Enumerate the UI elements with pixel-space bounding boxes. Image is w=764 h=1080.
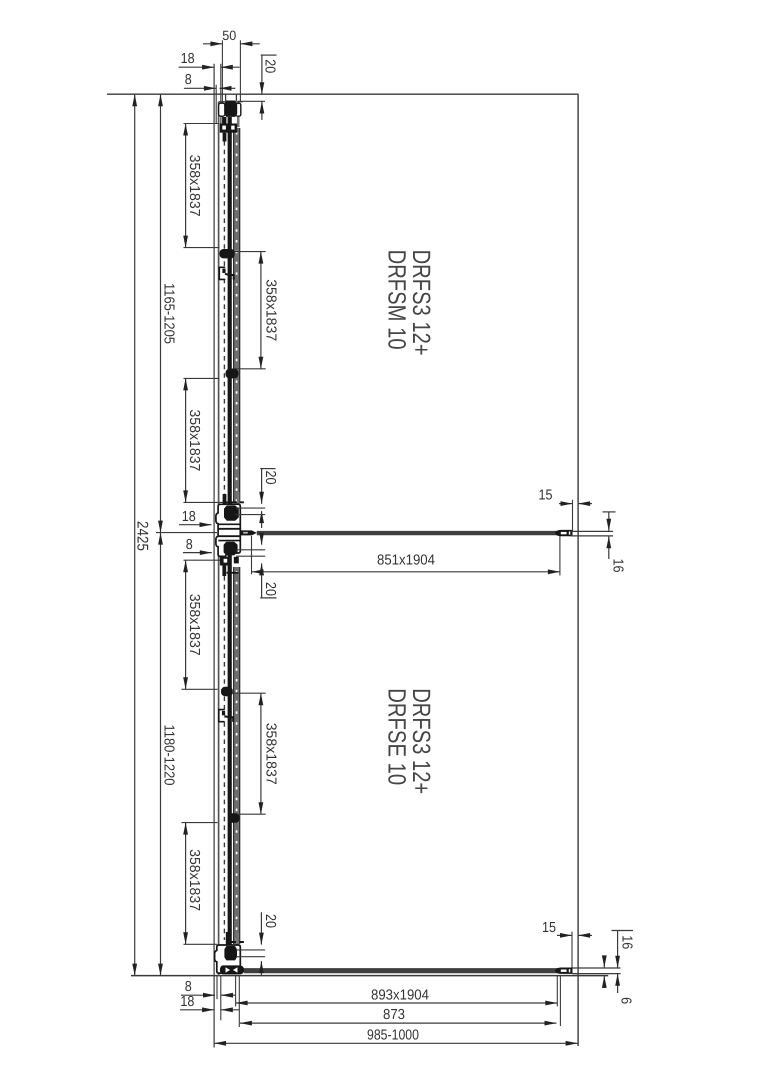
svg-text:15: 15 (539, 487, 553, 503)
svg-text:18: 18 (182, 509, 196, 525)
svg-text:20: 20 (261, 59, 277, 73)
svg-text:1180-1220: 1180-1220 (161, 725, 177, 786)
svg-text:6: 6 (618, 997, 634, 1004)
svg-text:1165-1205: 1165-1205 (161, 283, 177, 344)
svg-text:358x1837: 358x1837 (186, 409, 202, 471)
svg-text:8: 8 (185, 979, 192, 995)
svg-text:873: 873 (383, 1007, 405, 1023)
svg-text:358x1837: 358x1837 (186, 594, 202, 656)
svg-text:2425: 2425 (133, 521, 150, 551)
svg-text:18: 18 (181, 51, 195, 67)
svg-text:18: 18 (180, 994, 194, 1010)
svg-text:985-1000: 985-1000 (367, 1028, 419, 1044)
svg-text:893x1904: 893x1904 (371, 987, 429, 1003)
svg-text:358x1837: 358x1837 (186, 849, 202, 911)
svg-text:20: 20 (262, 471, 278, 485)
svg-text:8: 8 (185, 72, 192, 88)
svg-text:20: 20 (262, 914, 278, 928)
svg-text:358x1837: 358x1837 (262, 723, 278, 785)
svg-text:358x1837: 358x1837 (262, 279, 278, 341)
svg-text:DRFSM 10: DRFSM 10 (382, 250, 410, 350)
svg-text:15: 15 (542, 920, 556, 936)
svg-text:50: 50 (222, 28, 236, 43)
svg-text:DRFSE 10: DRFSE 10 (383, 688, 411, 785)
svg-text:16: 16 (619, 935, 635, 949)
svg-text:851x1904: 851x1904 (377, 552, 435, 568)
svg-text:20: 20 (262, 582, 278, 596)
svg-text:358x1837: 358x1837 (186, 155, 202, 217)
svg-text:16: 16 (609, 559, 625, 573)
svg-text:8: 8 (186, 537, 193, 553)
